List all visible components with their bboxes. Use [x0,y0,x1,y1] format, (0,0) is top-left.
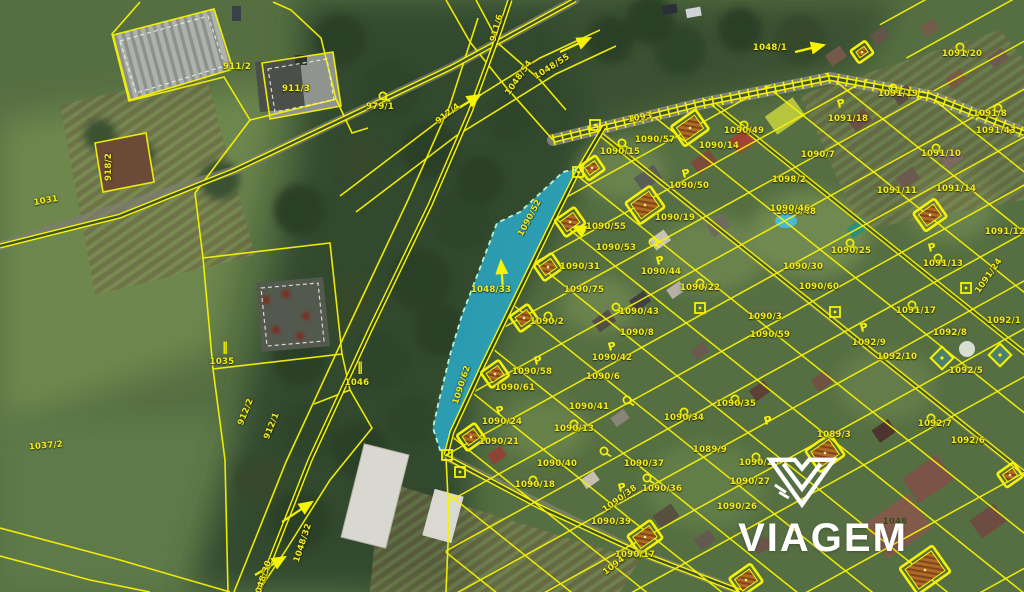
meadow-symbol-icon: ‖ [357,360,363,374]
map-viewport[interactable]: PPPPPPPPPP ‖‖ 911/2911/3918/21031979/191… [0,0,1024,592]
watermark-brand-text: VIAGEM [728,516,918,561]
viagem-logo-icon [722,450,922,514]
meadow-symbol-icon: ‖ [222,340,228,354]
watermark: VIAGEM [722,450,922,570]
